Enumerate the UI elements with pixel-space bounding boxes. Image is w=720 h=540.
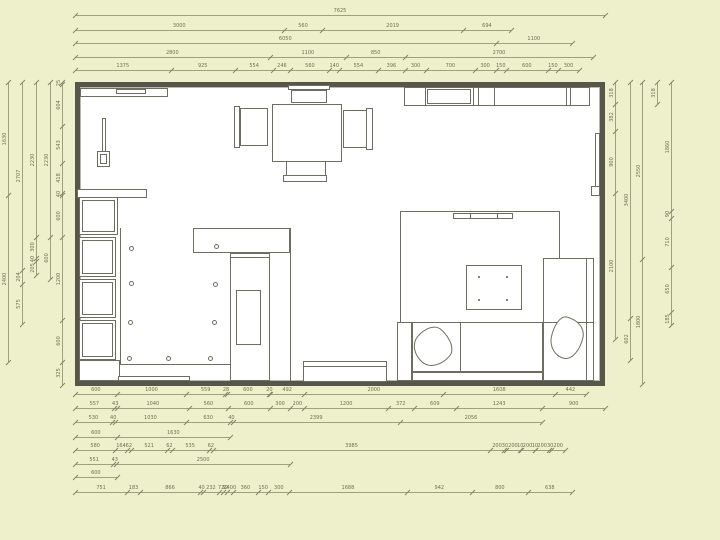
dim-label: 150 — [496, 63, 506, 69]
dimension-line — [75, 464, 290, 465]
dim-label: 600 — [91, 470, 101, 476]
dim-label: 300 — [411, 63, 421, 69]
dim-label: 543 — [56, 140, 62, 150]
spotlight-symbol — [129, 281, 134, 286]
dim-label: 62 — [166, 443, 172, 449]
dim-label: 246 — [277, 63, 287, 69]
dim-label: 630 — [203, 415, 213, 421]
cabinet-inner — [427, 89, 471, 104]
dim-label: 200 — [553, 443, 563, 449]
dim-label: 700 — [446, 63, 456, 69]
dim-label: 2800 — [166, 50, 179, 56]
dim-label: 638 — [545, 485, 555, 491]
dimension-tick — [570, 41, 576, 47]
dim-label: 2399 — [310, 415, 323, 421]
dim-label: 3000 — [173, 23, 186, 29]
dim-label: 418 — [56, 173, 62, 183]
floorplan-canvas: 7625300056020196946050110028001100850270… — [0, 0, 720, 540]
dim-label: 2500 — [197, 457, 210, 463]
dim-label: 3985 — [345, 443, 358, 449]
dim-label: 925 — [198, 63, 208, 69]
dim-label: 609 — [430, 401, 440, 407]
dim-label: 1375 — [116, 63, 129, 69]
dim-label: 360 — [241, 485, 251, 491]
dimension-tick — [20, 322, 26, 328]
dimension-tick — [591, 55, 597, 61]
table-dot — [478, 299, 480, 301]
wardrobe-door — [230, 253, 270, 258]
dimension-line — [50, 82, 51, 279]
cabinet-divider — [566, 87, 567, 106]
left-cabinet-box-inner — [82, 240, 113, 274]
dining-table — [272, 104, 342, 162]
spotlight-symbol — [127, 356, 132, 361]
dimension-line — [36, 82, 37, 275]
dimension-tick — [60, 382, 66, 388]
dim-label: 372 — [396, 401, 406, 407]
dimension-line — [75, 477, 117, 478]
dim-label: 2550 — [636, 164, 642, 177]
dim-label: 62 — [126, 443, 132, 449]
dim-label: 942 — [435, 485, 445, 491]
spotlight-symbol — [213, 282, 218, 287]
left-cabinet-box-inner — [82, 282, 113, 315]
dim-label: 40 — [110, 415, 116, 421]
dimension-line — [75, 408, 605, 409]
tv-console-divider — [497, 213, 498, 219]
dimension-line — [75, 57, 593, 58]
dim-label: 1040 — [146, 401, 159, 407]
dim-label: 300 — [274, 485, 284, 491]
table-dot — [478, 276, 480, 278]
dim-label: 40 — [56, 191, 62, 197]
dimension-tick — [114, 475, 120, 481]
dim-label: 850 — [371, 50, 381, 56]
dimension-line — [22, 82, 23, 324]
dim-label: 325 — [56, 369, 62, 379]
dim-label: 551 — [89, 457, 99, 463]
left-cabinet-box-inner — [82, 323, 113, 357]
dim-label: 1100 — [527, 36, 540, 42]
dimension-tick — [34, 273, 40, 279]
dimension-line — [75, 437, 230, 438]
dim-label: 800 — [495, 485, 505, 491]
dim-label: 559 — [201, 387, 211, 393]
dim-label: 382 — [609, 113, 615, 123]
dimension-line — [75, 15, 605, 16]
dim-label: 580 — [90, 443, 100, 449]
dim-label: 40 — [228, 415, 234, 421]
dim-label: 300 — [480, 63, 490, 69]
dim-label: 1630 — [2, 132, 8, 145]
dim-label: 25 — [56, 80, 62, 86]
chair-bottom-seat — [286, 161, 326, 176]
dim-label: 20 — [266, 387, 272, 393]
dim-label: 2100 — [609, 260, 615, 273]
bench-top — [303, 361, 387, 367]
dim-label: 205 — [30, 263, 36, 273]
table-dot — [506, 299, 508, 301]
dim-label: 900 — [569, 401, 579, 407]
dimension-tick — [577, 68, 583, 74]
dimension-line — [75, 422, 542, 423]
dim-label: 318 — [651, 88, 657, 98]
chair-bottom-back — [283, 175, 327, 182]
cabinet-divider — [494, 87, 495, 106]
dim-label: 1000 — [145, 387, 158, 393]
dim-label: 557 — [90, 401, 100, 407]
dim-label: 40 — [198, 485, 204, 491]
dim-label: 560 — [298, 23, 308, 29]
dim-label: 604 — [56, 100, 62, 110]
dim-label: 600 — [44, 253, 50, 263]
dim-label: 43 — [112, 457, 118, 463]
dimension-line — [671, 82, 672, 325]
dim-label: 140 — [329, 63, 339, 69]
dim-label: 1608 — [493, 387, 506, 393]
dimension-tick — [509, 28, 515, 34]
dim-label: 600 — [244, 401, 254, 407]
dim-label: 200 — [537, 443, 547, 449]
dim-label: 40 — [30, 256, 36, 262]
sofa-right-armrest — [586, 258, 587, 381]
radiator-right-foot — [591, 186, 600, 196]
dim-label: 650 — [665, 285, 671, 295]
dim-label: 575 — [16, 300, 22, 310]
chair-left-seat — [240, 108, 268, 146]
cabinet-divider — [473, 87, 474, 106]
tv-console-divider — [470, 213, 471, 219]
dim-label: 600 — [56, 211, 62, 221]
dim-label: 710 — [665, 237, 671, 247]
dim-label: 1243 — [493, 401, 506, 407]
dimension-tick — [228, 435, 234, 441]
dimension-tick — [6, 360, 12, 366]
dim-label: 492 — [282, 387, 292, 393]
spotlight-symbol — [128, 320, 133, 325]
cabinet-divider — [478, 87, 479, 106]
dim-label: 560 — [204, 401, 214, 407]
dimension-tick — [613, 337, 619, 343]
sofa-front — [412, 372, 543, 381]
dimension-tick — [603, 13, 609, 19]
dim-label: 554 — [249, 63, 259, 69]
spotlight-symbol — [214, 244, 219, 249]
dim-label: 521 — [144, 443, 154, 449]
dimension-line — [657, 82, 658, 104]
spotlight-symbol — [166, 356, 171, 361]
window-shelf-detail — [116, 89, 146, 94]
dim-label: 866 — [165, 485, 175, 491]
cabinet-divider — [570, 87, 571, 106]
dim-label: 300 — [30, 243, 36, 253]
dim-label: 318 — [609, 88, 615, 98]
dim-label: 204 — [16, 272, 22, 282]
dimension-tick — [583, 392, 589, 398]
dimension-line — [75, 30, 511, 31]
wardrobe-inner — [236, 290, 261, 345]
partition-wall — [290, 228, 291, 381]
dim-label: 2019 — [386, 23, 399, 29]
sofa-seat-divider — [460, 322, 461, 372]
dim-label: 560 — [305, 63, 315, 69]
dim-label: 1030 — [144, 415, 157, 421]
dim-label: 200 — [293, 401, 303, 407]
dimension-tick — [288, 462, 294, 468]
dim-label: 600 — [91, 430, 101, 436]
dim-label: 1200 — [56, 272, 62, 285]
dimension-tick — [540, 420, 546, 426]
dimension-tick — [603, 406, 609, 412]
dim-label: 164 — [116, 443, 126, 449]
counter — [193, 228, 290, 253]
dim-label: 1100 — [301, 50, 314, 56]
left-cabinet-base — [79, 360, 120, 381]
dim-label: 600 — [56, 336, 62, 346]
dimension-tick — [640, 382, 646, 388]
wall-lamp-base-inner — [100, 154, 107, 164]
dimension-line — [75, 394, 586, 395]
left-cabinet-box-inner — [82, 200, 115, 232]
dimension-tick — [570, 490, 576, 496]
dim-label: 600 — [522, 63, 532, 69]
dim-label: 694 — [482, 23, 492, 29]
tv-console — [453, 213, 513, 219]
dim-label: 396 — [387, 63, 397, 69]
dim-label: 535 — [185, 443, 195, 449]
dim-label: 232 — [206, 485, 216, 491]
dim-label: 43 — [112, 401, 118, 407]
zone-line-bottom — [120, 364, 230, 365]
dim-label: 150 — [548, 63, 558, 69]
dim-label: 300 — [564, 63, 574, 69]
dim-label: 62 — [208, 443, 214, 449]
dim-label: 6050 — [279, 36, 292, 42]
dim-label: 2230 — [30, 153, 36, 166]
dim-label: 7625 — [334, 8, 347, 14]
dim-label: 2400 — [223, 485, 236, 491]
spotlight-symbol — [129, 246, 134, 251]
dim-label: 600 — [243, 387, 253, 393]
zone-line-vertical — [120, 228, 121, 365]
dim-label: 90 — [665, 211, 671, 217]
radiator-right — [595, 133, 600, 192]
dim-label: 442 — [566, 387, 576, 393]
dim-label: 751 — [96, 485, 106, 491]
sofa-armrest-left — [397, 322, 412, 381]
cabinet-divider — [425, 87, 426, 106]
dim-label: 900 — [609, 157, 615, 167]
dim-label: 2400 — [2, 272, 8, 285]
chair-top-seat — [291, 90, 327, 103]
dim-label: 185 — [665, 314, 671, 324]
dim-label: 3400 — [624, 194, 630, 207]
dim-label: 183 — [129, 485, 139, 491]
dim-label: 300 — [275, 401, 285, 407]
dimension-line — [75, 450, 565, 451]
dim-label: 1630 — [167, 430, 180, 436]
dim-label: 600 — [91, 387, 101, 393]
dim-label: 2707 — [16, 170, 22, 183]
dimension-tick — [48, 276, 54, 282]
dim-label: 150 — [258, 485, 268, 491]
dimension-line — [615, 82, 616, 339]
dimension-tick — [563, 448, 569, 454]
dimension-tick — [655, 102, 661, 108]
dim-label: 2700 — [493, 50, 506, 56]
dim-label: 1688 — [342, 485, 355, 491]
dim-label: 1860 — [665, 140, 671, 153]
dim-label: 1800 — [636, 315, 642, 328]
dim-label: 530 — [89, 415, 99, 421]
chair-right-back — [366, 108, 373, 150]
dimension-tick — [628, 358, 634, 364]
spotlight-symbol — [212, 320, 217, 325]
dim-label: 2230 — [44, 153, 50, 166]
dim-label: 2000 — [367, 387, 380, 393]
dimension-line — [75, 492, 572, 493]
dim-label: 554 — [354, 63, 364, 69]
door-threshold — [118, 376, 190, 381]
spotlight-symbol — [208, 356, 213, 361]
coffee-table — [466, 265, 522, 310]
table-dot — [506, 276, 508, 278]
dimension-line — [642, 82, 643, 384]
dim-label: 1200 — [340, 401, 353, 407]
chair-right-seat — [343, 110, 367, 148]
dim-label: 602 — [624, 334, 630, 344]
dim-label: 200 — [492, 443, 502, 449]
dimension-line — [8, 82, 9, 362]
dim-label: 30 — [547, 443, 553, 449]
dim-label: 28 — [223, 387, 229, 393]
dim-label: 2056 — [465, 415, 478, 421]
